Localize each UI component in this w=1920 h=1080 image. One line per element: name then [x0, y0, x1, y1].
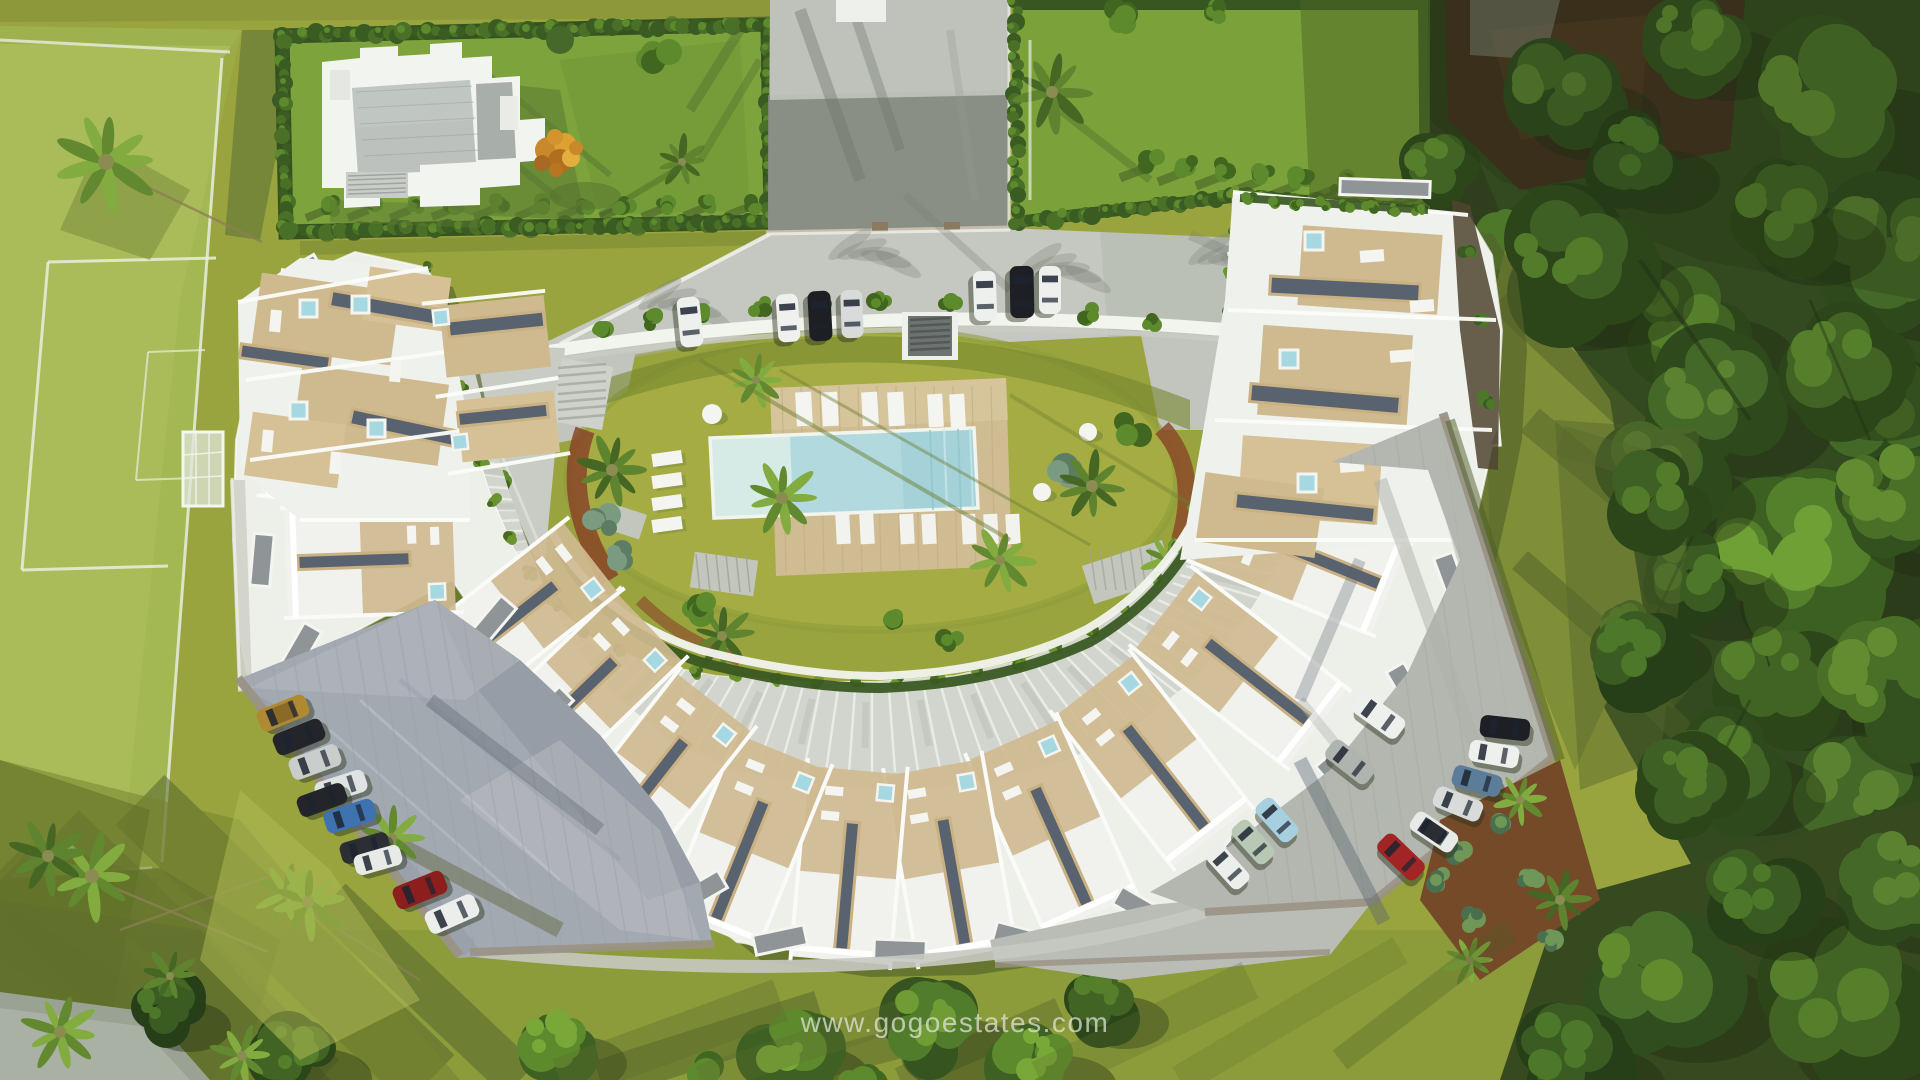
svg-text:www.gogoestates.com: www.gogoestates.com: [800, 1007, 1110, 1038]
